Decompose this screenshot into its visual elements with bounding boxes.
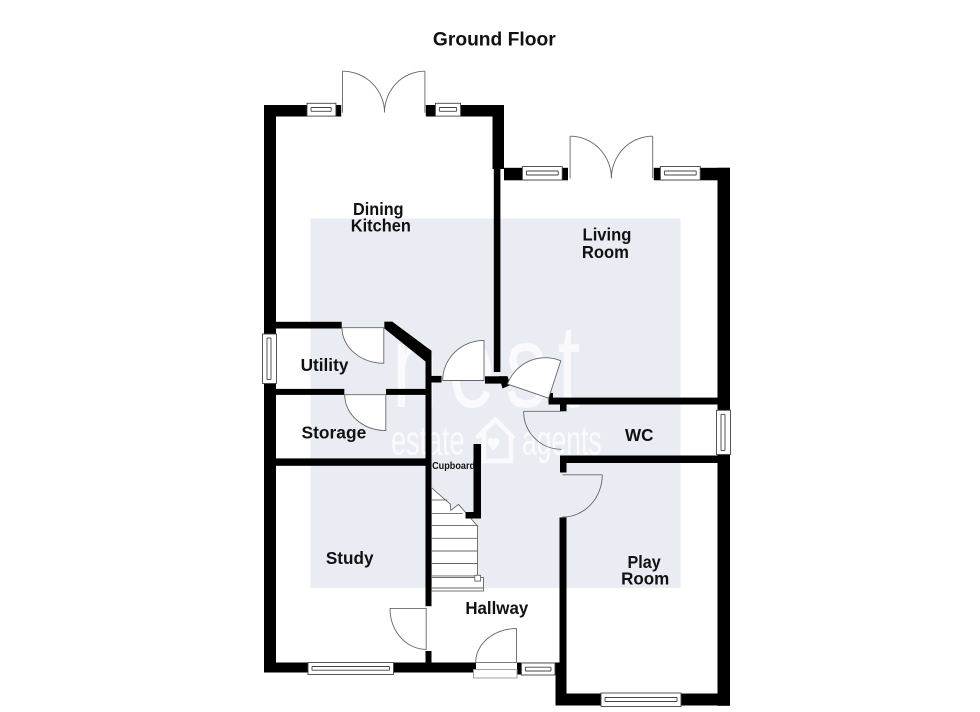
svg-text:Room: Room bbox=[582, 242, 629, 262]
svg-text:Room: Room bbox=[621, 569, 669, 589]
svg-text:Hallway: Hallway bbox=[465, 598, 528, 618]
svg-text:Storage: Storage bbox=[302, 422, 367, 442]
svg-text:Utility: Utility bbox=[301, 355, 349, 375]
svg-text:Study: Study bbox=[326, 548, 374, 568]
svg-text:Ground Floor: Ground Floor bbox=[433, 30, 556, 51]
svg-text:nest: nest bbox=[392, 300, 591, 433]
svg-text:Kitchen: Kitchen bbox=[351, 215, 411, 235]
svg-text:WC: WC bbox=[625, 425, 654, 445]
svg-text:Cupboard: Cupboard bbox=[432, 461, 475, 472]
